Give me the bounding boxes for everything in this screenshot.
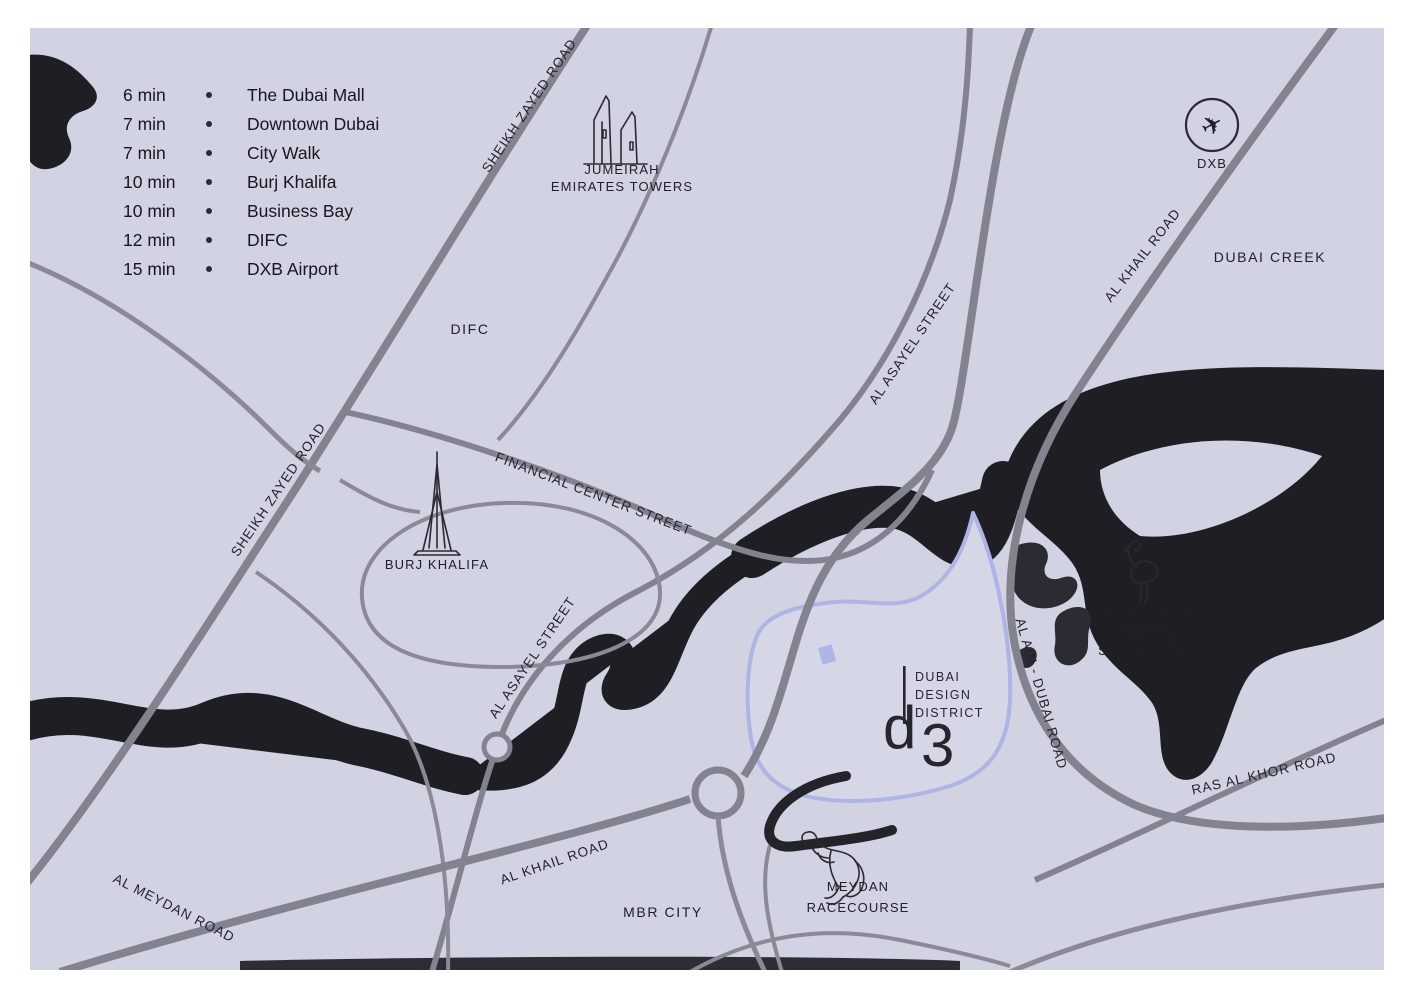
label-jumeirah-2: EMIRATES TOWERS	[551, 179, 693, 194]
legend-time: 7 min	[123, 114, 166, 134]
roundabout	[484, 734, 510, 760]
legend-time: 10 min	[123, 201, 176, 221]
legend-place: Business Bay	[247, 201, 353, 221]
d3-label-dubai: DUBAI	[915, 670, 960, 684]
label-meydan-2: RACECOURSE	[807, 900, 910, 915]
bullet-icon	[206, 92, 212, 98]
legend-time: 12 min	[123, 230, 176, 250]
label-dxb: DXB	[1197, 156, 1227, 171]
dubai-map: ✈ DUBAI DESIGN DISTRICT d 3 SHEIKH ZA	[0, 0, 1414, 1000]
label-sanctuary-3: SANCTUARY	[1098, 643, 1188, 658]
label-dubai-creek: DUBAI CREEK	[1214, 249, 1327, 265]
bullet-icon	[206, 208, 212, 214]
label-sanctuary-2: WILDLIFE	[1109, 622, 1178, 637]
bullet-icon	[206, 237, 212, 243]
legend-time: 6 min	[123, 85, 166, 105]
bullet-icon	[206, 150, 212, 156]
legend-place: DIFC	[247, 230, 288, 250]
legend-place: Burj Khalifa	[247, 172, 337, 192]
legend-place: City Walk	[247, 143, 320, 163]
legend-time: 10 min	[123, 172, 176, 192]
legend-place: Downtown Dubai	[247, 114, 379, 134]
d3-logo-d: d	[883, 694, 916, 761]
bullet-icon	[206, 266, 212, 272]
bullet-icon	[206, 121, 212, 127]
label-jumeirah-1: JUMEIRAH	[584, 162, 659, 177]
label-meydan-1: MEYDAN	[827, 879, 889, 894]
legend-row: 7 min Downtown Dubai	[123, 114, 379, 134]
label-mbr-city: MBR CITY	[623, 904, 703, 920]
legend-place: DXB Airport	[247, 259, 339, 279]
legend-time: 7 min	[123, 143, 166, 163]
d3-logo-3: 3	[921, 712, 954, 779]
label-sanctuary-1: RAS AL KHOR	[1094, 601, 1192, 616]
label-burj-khalifa: BURJ KHALIFA	[385, 557, 489, 572]
legend-time: 15 min	[123, 259, 176, 279]
d3-label-design: DESIGN	[915, 688, 971, 702]
map-page: ✈ DUBAI DESIGN DISTRICT d 3 SHEIKH ZA	[0, 0, 1414, 1000]
legend-place: The Dubai Mall	[247, 85, 365, 105]
label-difc: DIFC	[450, 321, 489, 337]
bullet-icon	[206, 179, 212, 185]
